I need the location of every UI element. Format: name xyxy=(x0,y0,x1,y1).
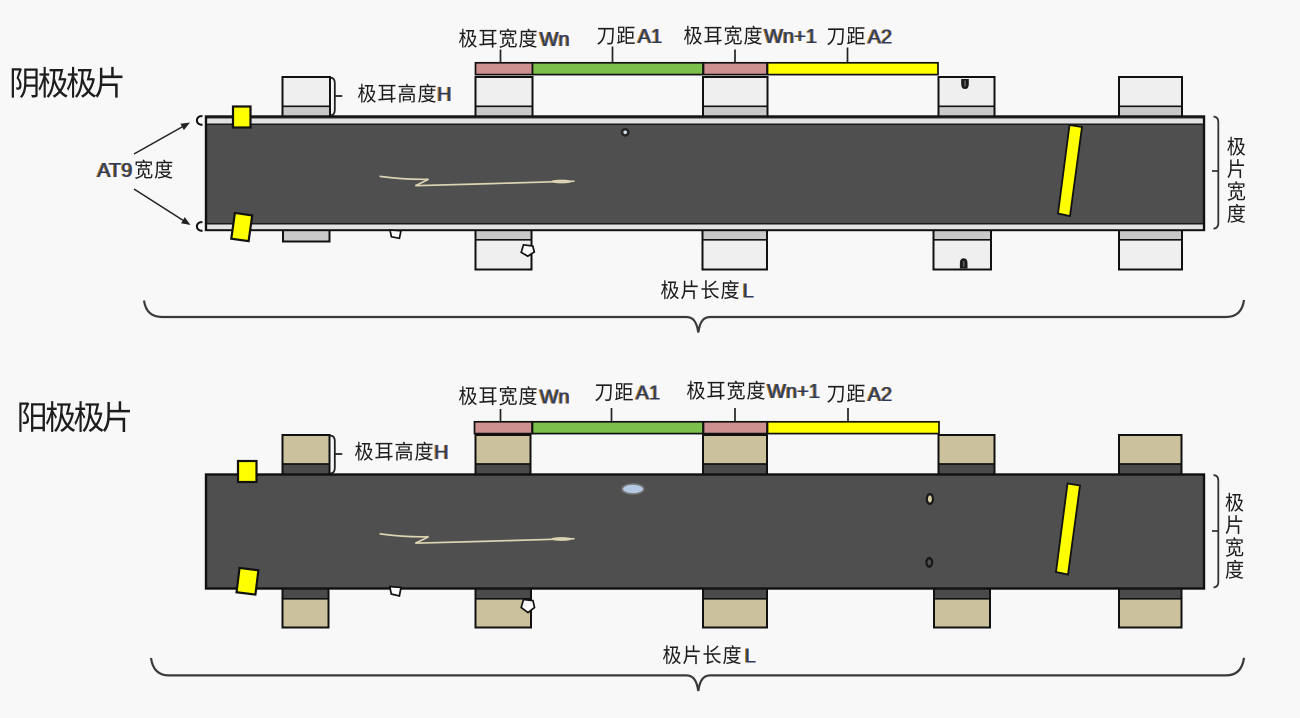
svg-text:A1: A1 xyxy=(636,383,660,405)
svg-text:AT9: AT9 xyxy=(97,160,132,182)
svg-text:A2: A2 xyxy=(868,384,892,406)
svg-text:A1: A1 xyxy=(638,26,662,48)
svg-text:Wn: Wn xyxy=(540,387,570,409)
svg-text:Wn+1: Wn+1 xyxy=(764,26,817,48)
svg-text:Wn+1: Wn+1 xyxy=(767,381,820,403)
svg-text:H: H xyxy=(437,84,451,106)
svg-text:L: L xyxy=(743,281,754,303)
svg-text:H: H xyxy=(434,442,448,464)
svg-text:A2: A2 xyxy=(868,27,892,49)
svg-text:Wn: Wn xyxy=(540,29,570,51)
svg-text:L: L xyxy=(745,646,756,668)
